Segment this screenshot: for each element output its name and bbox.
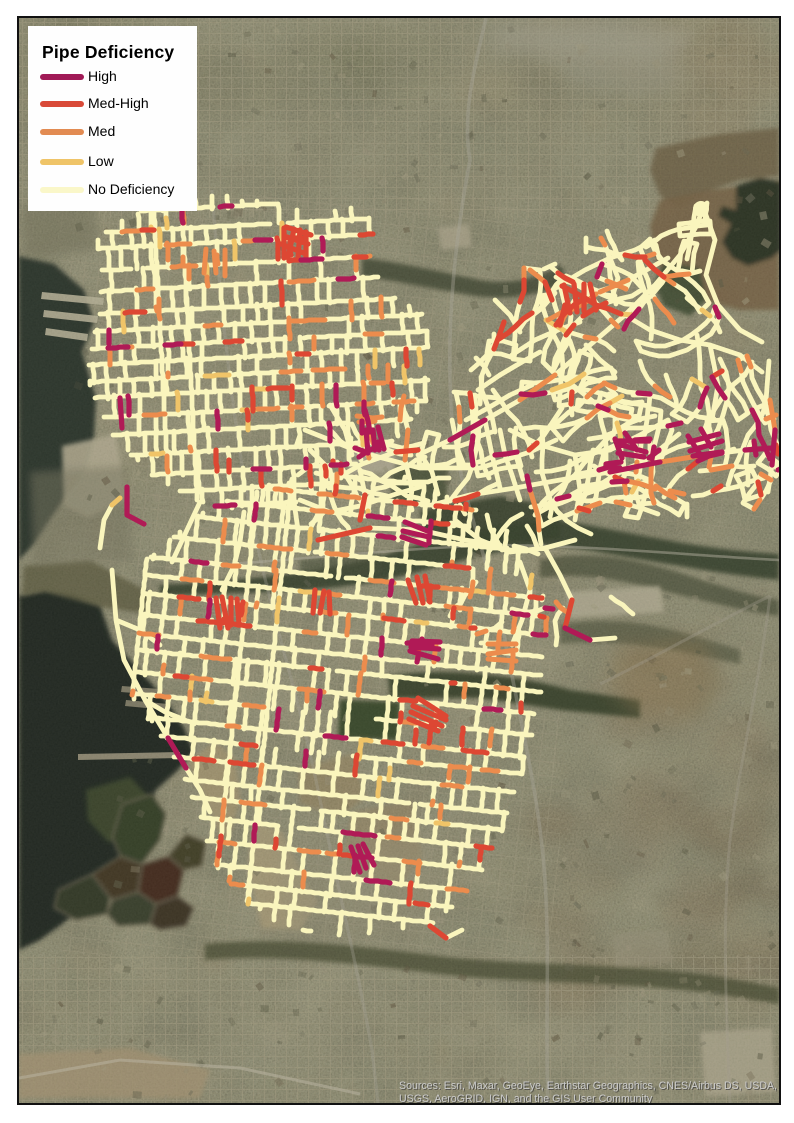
svg-text:Sources: Esri, Maxar, GeoEye,: Sources: Esri, Maxar, GeoEye, Earthstar …	[399, 1080, 777, 1092]
svg-text:USGS, AeroGRID, IGN, and the G: USGS, AeroGRID, IGN, and the GIS User Co…	[399, 1093, 653, 1103]
